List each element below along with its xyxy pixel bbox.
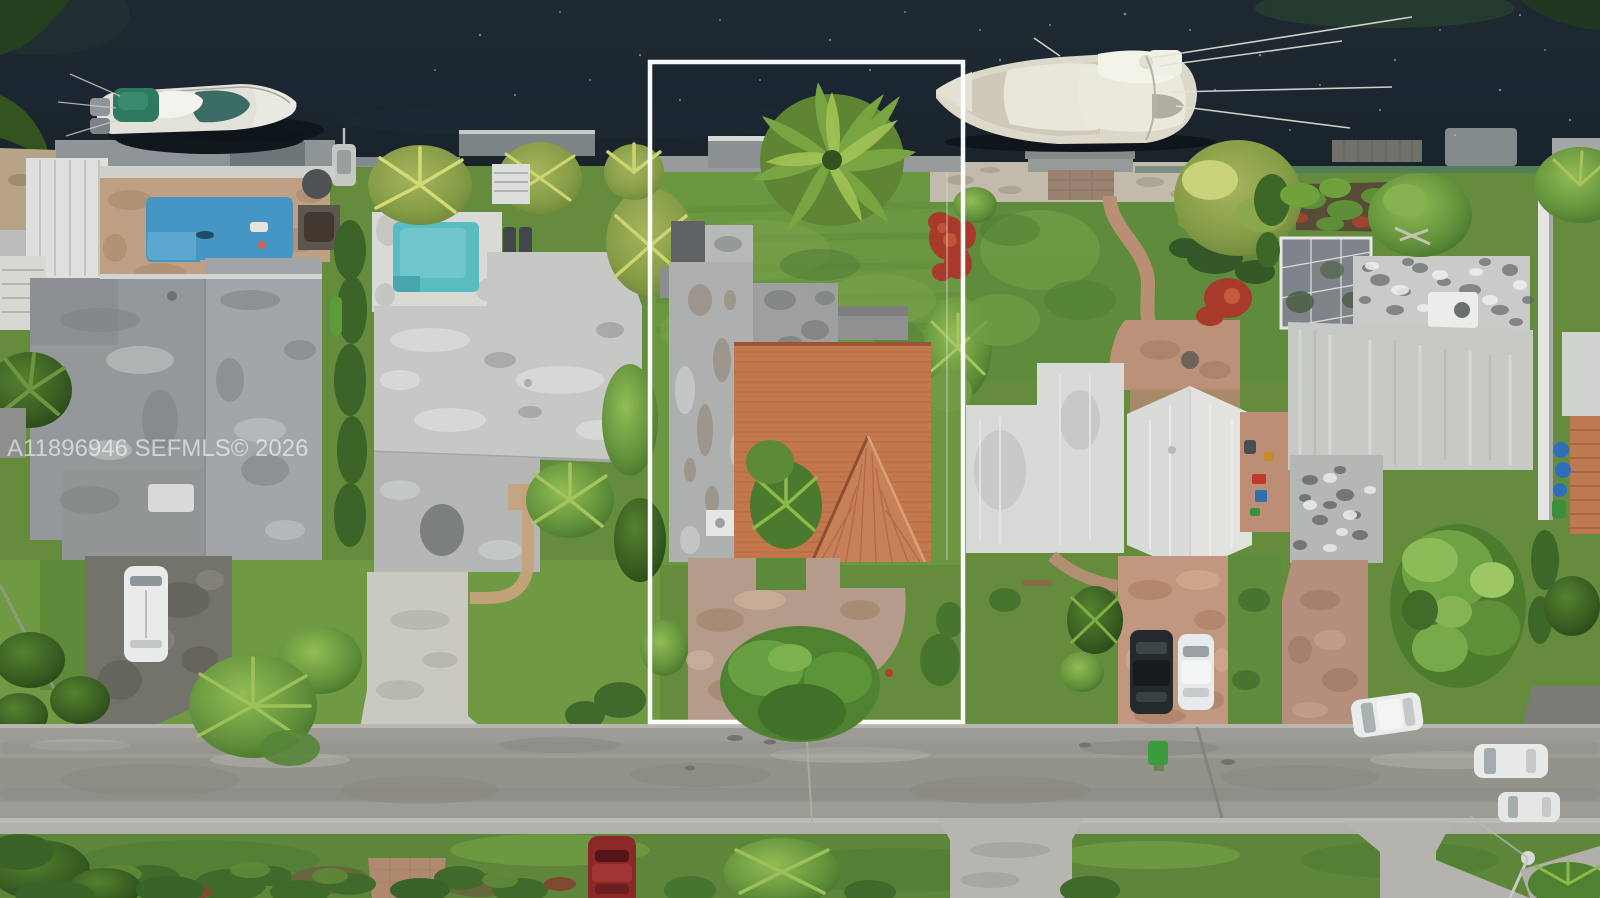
svg-text:A11896946 SEFMLS© 2026: A11896946 SEFMLS© 2026 [7, 435, 308, 462]
